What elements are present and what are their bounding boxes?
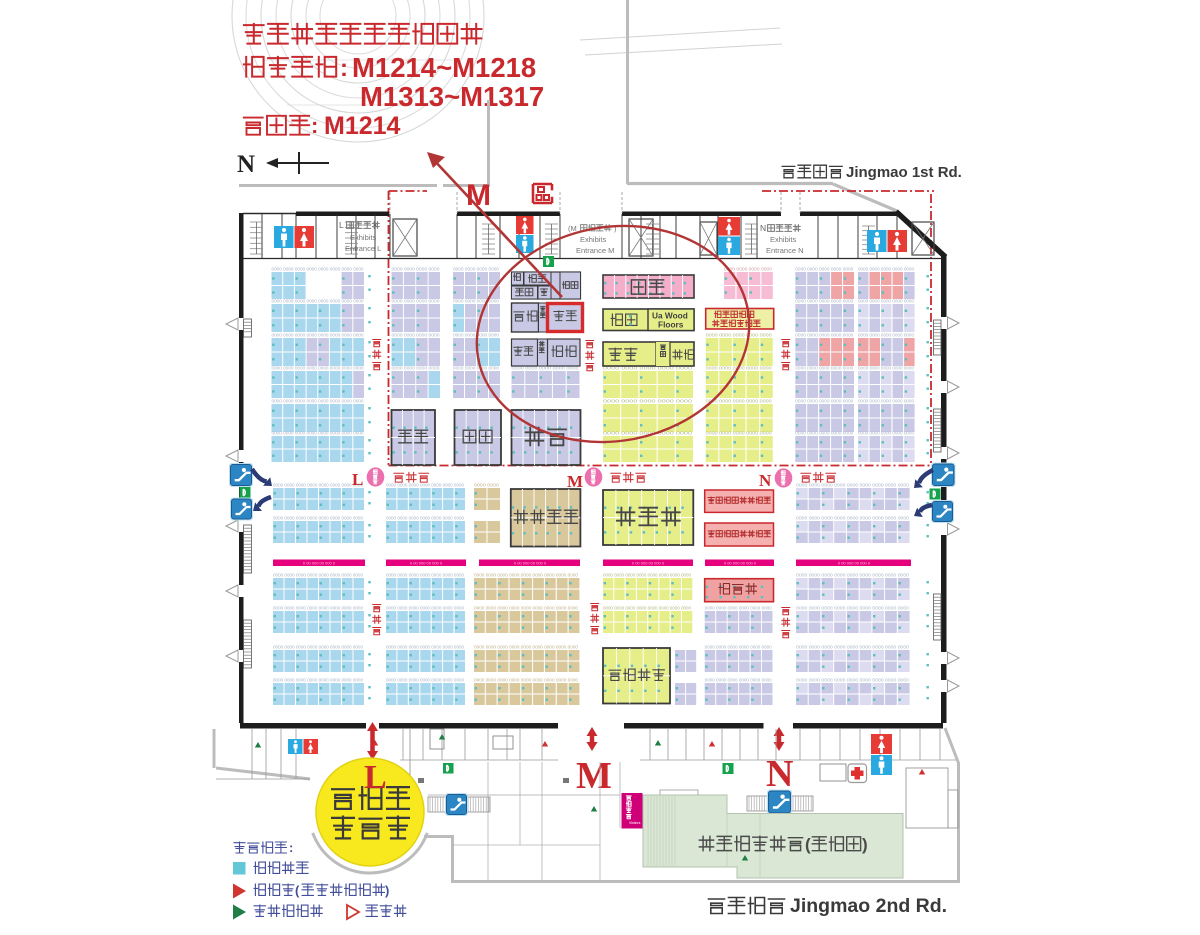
svg-text:0000 0000: 0000 0000 (474, 483, 500, 488)
svg-text:M: M (576, 755, 612, 797)
svg-text:0000 0000 0000 0000 0000 0000: 0000 0000 0000 0000 0000 0000 0000 (386, 678, 465, 683)
svg-text:0000 0000 0000 0000 0000 0000: 0000 0000 0000 0000 0000 0000 0000 0000 (273, 678, 364, 683)
svg-text:0000 0000 0000 0000 0000 0000: 0000 0000 0000 0000 0000 0000 0000 0000 (603, 606, 692, 611)
svg-text:0000 0000 0000 0000 0000 0000: 0000 0000 0000 0000 0000 0000 0000 0000 … (796, 678, 910, 683)
svg-text::: : (311, 113, 318, 138)
svg-text:0000 0000 0000 0000 0000 0000: 0000 0000 0000 0000 0000 0000 0000 0000 (272, 431, 365, 436)
svg-text:Floors: Floors (658, 320, 684, 330)
svg-text:0000 0000 0000 0000 0000 0000: 0000 0000 0000 0000 0000 0000 0000 0000 (272, 299, 365, 304)
svg-text:0000 0000 0000 0000 0000 0000: 0000 0000 0000 0000 0000 0000 0000 0000 … (474, 678, 579, 683)
svg-text:0000 0000 0000 0000 0000: 0000 0000 0000 0000 0000 (706, 333, 773, 338)
svg-text:N: N (237, 151, 255, 178)
svg-text:0000 0000 0000 0000 0000 0000: 0000 0000 0000 0000 0000 0000 0000 0000 (272, 333, 365, 338)
svg-text:0 00 000 00 000 0: 0 00 000 00 000 0 (514, 561, 547, 566)
svg-text:0000 0000 0000 0000: 0000 0000 0000 0000 (453, 299, 500, 304)
svg-text:L: L (364, 759, 387, 796)
svg-text:0000 0000 0000 0000 0000 0000: 0000 0000 0000 0000 0000 0000 0000 0000 … (796, 573, 910, 578)
svg-text:0 00 000 00 000 0: 0 00 000 00 000 0 (724, 561, 757, 566)
svg-text:0000 0000 0000 0000 0000 0000: 0000 0000 0000 0000 0000 0000 0000 0000 … (796, 645, 910, 650)
svg-text:L: L (352, 470, 363, 489)
svg-text:M1214: M1214 (324, 112, 401, 140)
svg-text:0000 0000 0000 0000 0000: 0000 0000 0000 0000 0000 (795, 399, 854, 404)
svg-text::: : (340, 55, 348, 82)
svg-text:0000 0000 0000 0000 0000 0000: 0000 0000 0000 0000 0000 0000 0000 0000 … (474, 573, 579, 578)
svg-text:): ) (862, 835, 868, 854)
svg-text:0000 0000 0000 0000 0000: 0000 0000 0000 0000 0000 (795, 267, 854, 272)
svg-text:(: ( (805, 835, 811, 854)
svg-text:0 00 000 00 000 0: 0 00 000 00 000 0 (410, 561, 443, 566)
svg-text:0 00 000 00 000 0: 0 00 000 00 000 0 (303, 561, 336, 566)
svg-text:0000 0000 0000 0000 0000 0000: 0000 0000 0000 0000 0000 0000 (705, 645, 773, 650)
svg-text::: : (289, 840, 293, 855)
svg-text:M1313~M1317: M1313~M1317 (360, 81, 544, 112)
svg-text:0000 0000 0000 0000 0000 0000: 0000 0000 0000 0000 0000 0000 0000 (386, 645, 465, 650)
svg-text:0000 0000 0000 0000 0000 0000: 0000 0000 0000 0000 0000 0000 0000 0000 … (796, 516, 910, 521)
svg-text:0000 0000 0000 0000: 0000 0000 0000 0000 (392, 299, 441, 304)
svg-text:0000 0000 0000 0000: 0000 0000 0000 0000 (392, 267, 441, 272)
svg-text:0000 0000 0000 0000 0000 0000: 0000 0000 0000 0000 0000 0000 0000 (386, 516, 465, 521)
svg-text:N: N (766, 753, 793, 795)
svg-text:0000 0000 0000 0000 0000 0000: 0000 0000 0000 0000 0000 0000 0000 0000 … (796, 483, 910, 488)
svg-text:0000 0000 0000 0000 0000 0000: 0000 0000 0000 0000 0000 0000 0000 (386, 606, 465, 611)
svg-text:0000 0000 0000 0000 0000 0000: 0000 0000 0000 0000 0000 0000 0000 0000 (273, 483, 364, 488)
svg-text:): ) (385, 883, 389, 898)
svg-text:0000 0000 0000 0000 0000 0000: 0000 0000 0000 0000 0000 0000 0000 0000 (273, 573, 364, 578)
svg-text:Entrance N: Entrance N (766, 246, 804, 255)
svg-text:0000 0000 0000 0000 0000 0000: 0000 0000 0000 0000 0000 0000 0000 0000 (603, 573, 692, 578)
svg-text:0000 0000 0000 0000 0000 0000: 0000 0000 0000 0000 0000 0000 0000 0000 (272, 399, 365, 404)
svg-text:0 00 000 00 000 0: 0 00 000 00 000 0 (632, 561, 665, 566)
svg-text:Visitors: Visitors (629, 821, 641, 825)
svg-text:0000 0000 0000 0000 0000: 0000 0000 0000 0000 0000 (858, 399, 915, 404)
svg-text:0000 0000 0000 0000 0000 0000: 0000 0000 0000 0000 0000 0000 0000 0000 (273, 516, 364, 521)
svg-text:N: N (760, 223, 766, 233)
svg-text:0000 0000 0000 0000 0000 0000: 0000 0000 0000 0000 0000 0000 (705, 606, 773, 611)
svg-text:0000 0000 0000 0000: 0000 0000 0000 0000 (453, 366, 500, 371)
svg-text:0000 0000 0000 0000 0000 0000: 0000 0000 0000 0000 0000 0000 0000 0000 (273, 606, 364, 611)
svg-text:0000 0000 0000 0000 0000: 0000 0000 0000 0000 0000 (706, 431, 773, 436)
svg-text:0000 0000 0000 0000 0000 0000: 0000 0000 0000 0000 0000 0000 0000 (386, 483, 465, 488)
svg-text:Entrance L: Entrance L (345, 244, 381, 253)
svg-text:0000 0000 0000 0000 0000 0000: 0000 0000 0000 0000 0000 0000 0000 0000 (272, 267, 365, 272)
svg-text:0000 0000 0000 0000 0000: 0000 0000 0000 0000 0000 (858, 431, 915, 436)
svg-text:0000 0000 0000 0000: 0000 0000 0000 0000 (453, 267, 500, 272)
svg-text:0000 0000 0000 0000 0000 0000: 0000 0000 0000 0000 0000 0000 0000 0000 (272, 366, 365, 371)
svg-text:Jingmao 2nd Rd.: Jingmao 2nd Rd. (790, 895, 947, 917)
svg-text:M: M (567, 472, 583, 491)
svg-text:(M: (M (568, 224, 577, 233)
svg-text:0000 0000 0000 0000: 0000 0000 0000 0000 (392, 366, 441, 371)
svg-text:0000 0000 0000 0000 0000: 0000 0000 0000 0000 0000 (858, 333, 915, 338)
svg-text:0 00 000 00 000 0: 0 00 000 00 000 0 (838, 561, 871, 566)
svg-text:0000 0000 0000 0000 0000: 0000 0000 0000 0000 0000 (795, 333, 854, 338)
svg-text:Exhibits: Exhibits (580, 235, 607, 244)
svg-text:Exhibits: Exhibits (350, 233, 377, 242)
svg-text:0000 0000 0000 0000 0000: 0000 0000 0000 0000 0000 (795, 299, 854, 304)
svg-text:0000 0000 0000 0000 0000 0000: 0000 0000 0000 0000 0000 0000 (705, 678, 773, 683)
svg-text:0000 0000 0000 0000: 0000 0000 0000 0000 (392, 333, 441, 338)
svg-text:Jingmao 1st Rd.: Jingmao 1st Rd. (846, 164, 962, 181)
svg-text:(: ( (295, 883, 300, 898)
svg-text:Entrance M: Entrance M (576, 246, 614, 255)
svg-text:0000 0000 0000 0000 0000 0000: 0000 0000 0000 0000 0000 0000 0000 0000 … (796, 606, 910, 611)
svg-text:0000 0000 0000 0000 0000: 0000 0000 0000 0000 0000 (795, 431, 854, 436)
svg-text:M1214~M1218: M1214~M1218 (352, 52, 536, 83)
svg-text:0000 0000 0000 0000 0000 0000: 0000 0000 0000 0000 0000 0000 0000 (386, 573, 465, 578)
svg-text:0000 0000 0000 0000 0000: 0000 0000 0000 0000 0000 (795, 366, 854, 371)
svg-text:0000 0000 0000 0000 0000: 0000 0000 0000 0000 0000 (858, 299, 915, 304)
svg-text:0000 0000 0000 0000 0000: 0000 0000 0000 0000 0000 (603, 399, 693, 404)
svg-text:0000 0000 0000 0000 0000 0000: 0000 0000 0000 0000 0000 0000 0000 0000 … (474, 645, 579, 650)
svg-text:Exhibits: Exhibits (770, 235, 797, 244)
svg-text:0000 0000 0000 0000 0000: 0000 0000 0000 0000 0000 (858, 267, 915, 272)
svg-text:0000 0000 0000 0000 0000 0000: 0000 0000 0000 0000 0000 0000 0000 0000 … (474, 606, 579, 611)
svg-text:L: L (339, 220, 344, 230)
svg-text:0000 0000 0000 0000 0000 0000: 0000 0000 0000 0000 0000 0000 0000 0000 (273, 645, 364, 650)
svg-text:0000 0000 0000 0000 0000: 0000 0000 0000 0000 0000 (858, 366, 915, 371)
svg-text:N: N (759, 471, 772, 490)
